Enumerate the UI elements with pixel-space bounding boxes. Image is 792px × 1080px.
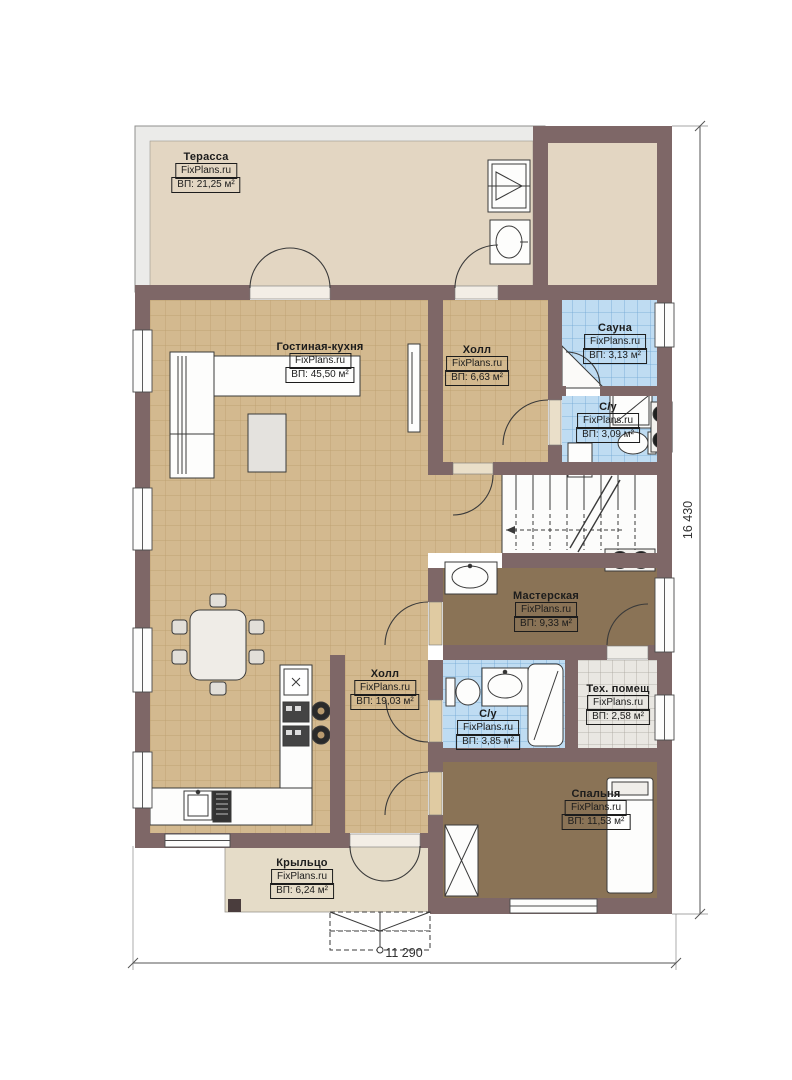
- toilet-bottom: [446, 678, 480, 706]
- workshop-sink-icon: [445, 562, 497, 594]
- kitchen-sink: [184, 790, 212, 820]
- window: [133, 330, 152, 392]
- dimension-height-label: 16 430: [681, 501, 695, 539]
- terrace-sink-icon: [490, 220, 530, 264]
- dishwasher: [213, 791, 231, 822]
- room-porch-floor: [225, 846, 435, 912]
- wc-sink-icon: [482, 668, 528, 706]
- floor-plan-drawing: 16 430 11 290: [0, 0, 792, 1080]
- window: [165, 834, 230, 847]
- porch-post: [228, 899, 241, 912]
- room-tech-floor: [578, 660, 657, 748]
- toilet-top: [618, 432, 656, 454]
- room-terrace-floor: [150, 141, 533, 292]
- bathtub-icon: [528, 664, 563, 746]
- dimension-width-label: 11 290: [385, 946, 422, 960]
- room-hall-top-floor: [443, 300, 548, 462]
- window: [655, 578, 674, 652]
- window: [655, 303, 674, 347]
- window: [655, 695, 674, 740]
- window: [510, 899, 597, 913]
- window: [133, 628, 152, 692]
- bbq-grill-icon: [488, 160, 530, 212]
- window: [133, 488, 152, 550]
- coffee-table: [248, 414, 286, 472]
- floor-plan-page: 16 430 11 290 Терасса FixPlans.ru ВП: 21…: [0, 0, 792, 1080]
- tv-unit: [408, 344, 420, 432]
- bed: [607, 778, 653, 893]
- window: [133, 752, 152, 808]
- terrace-corner-floor: [548, 143, 657, 293]
- wardrobe: [445, 825, 478, 896]
- stairs-floor: [502, 475, 657, 553]
